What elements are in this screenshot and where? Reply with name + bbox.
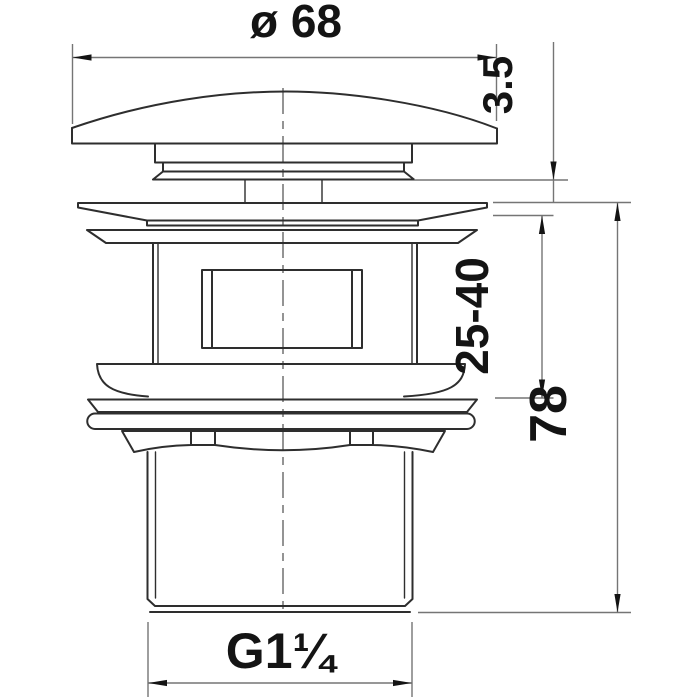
overall-height-label: 78: [520, 385, 578, 443]
dimension-thread: G1¼: [148, 622, 412, 697]
arrowhead-left: [148, 680, 167, 686]
valve-body-geometry: [72, 92, 497, 613]
waste-valve-drawing: ø 68 3.5 25-40 78 G1¼: [0, 0, 700, 700]
overflow-window: [202, 270, 362, 348]
technical-drawing-canvas: ø 68 3.5 25-40 78 G1¼: [0, 0, 700, 700]
flange-seal-ring: [87, 230, 477, 243]
arrowhead-up: [539, 216, 545, 235]
cap-gap-label: 3.5: [474, 56, 521, 114]
arrowhead-up: [614, 203, 620, 222]
arrowhead-down: [614, 594, 620, 613]
thread-depth-lines: [156, 452, 405, 598]
cone-gasket: [97, 364, 465, 397]
arrowhead-down: [550, 162, 556, 181]
body-tube-inner-edge: [158, 243, 412, 364]
threaded-tailpiece: [148, 452, 413, 612]
backing-washer: [87, 414, 475, 430]
thread-label: G1¼: [226, 623, 339, 679]
arrowhead-left: [73, 54, 92, 60]
dimension-cap-gap: 3.5: [414, 42, 568, 203]
arrowhead-right: [393, 680, 412, 686]
clamp-range-label: 25-40: [446, 257, 498, 375]
body-tube: [153, 243, 417, 364]
clamp-range-extension-lines: [493, 216, 554, 399]
cap-rim: [72, 128, 497, 144]
diameter-extension-lines: [73, 44, 497, 124]
dimension-clamp-range: 25-40: [446, 216, 554, 399]
cap-dome: [72, 92, 497, 129]
diameter-label: ø 68: [250, 0, 342, 47]
dimension-diameter: ø 68: [73, 0, 497, 124]
